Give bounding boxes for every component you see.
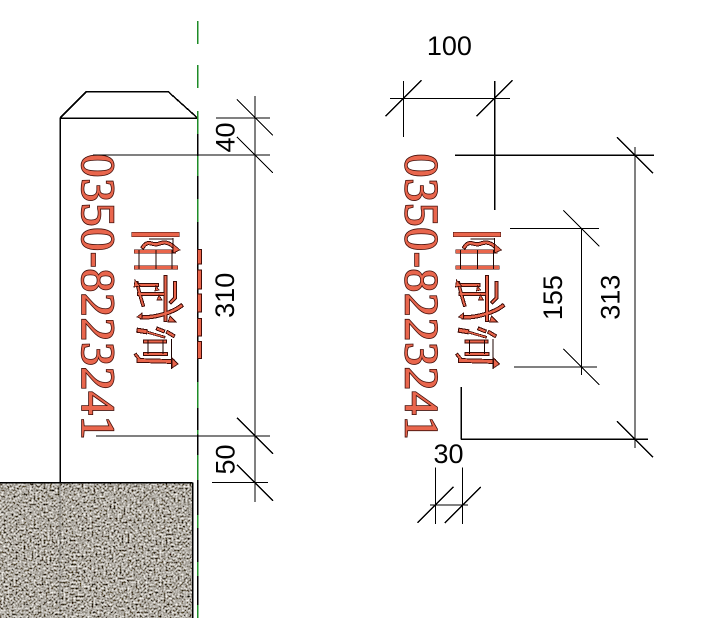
svg-text:155: 155 [538,275,568,320]
svg-text:313: 313 [596,275,626,320]
svg-text:310: 310 [210,273,240,318]
svg-text:0350-8223241: 0350-8223241 [71,154,123,441]
svg-text:0350-8223241: 0350-8223241 [395,154,447,441]
svg-text:50: 50 [211,444,241,474]
svg-text:40: 40 [211,122,241,152]
svg-text:30: 30 [433,439,463,469]
svg-text:100: 100 [427,31,472,61]
